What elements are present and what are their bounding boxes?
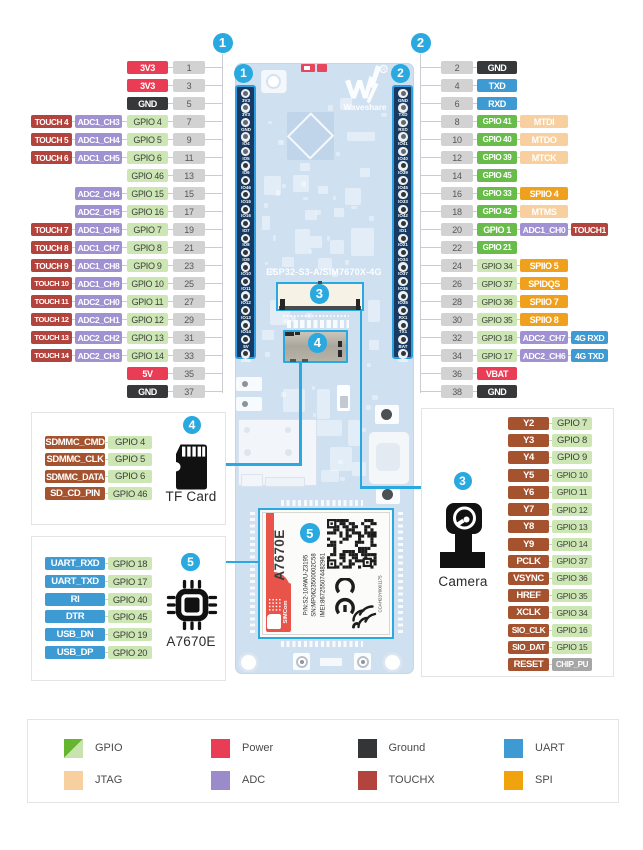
svg-text:Waveshare: Waveshare — [344, 103, 387, 112]
svg-text:R: R — [381, 67, 386, 73]
